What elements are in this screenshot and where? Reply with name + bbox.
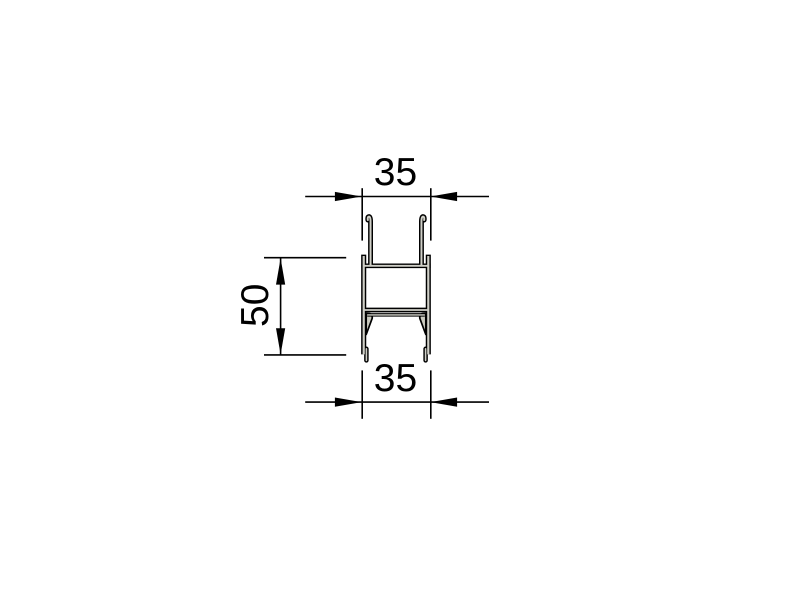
- svg-text:35: 35: [374, 151, 417, 194]
- svg-text:35: 35: [374, 357, 417, 400]
- svg-text:50: 50: [234, 284, 277, 327]
